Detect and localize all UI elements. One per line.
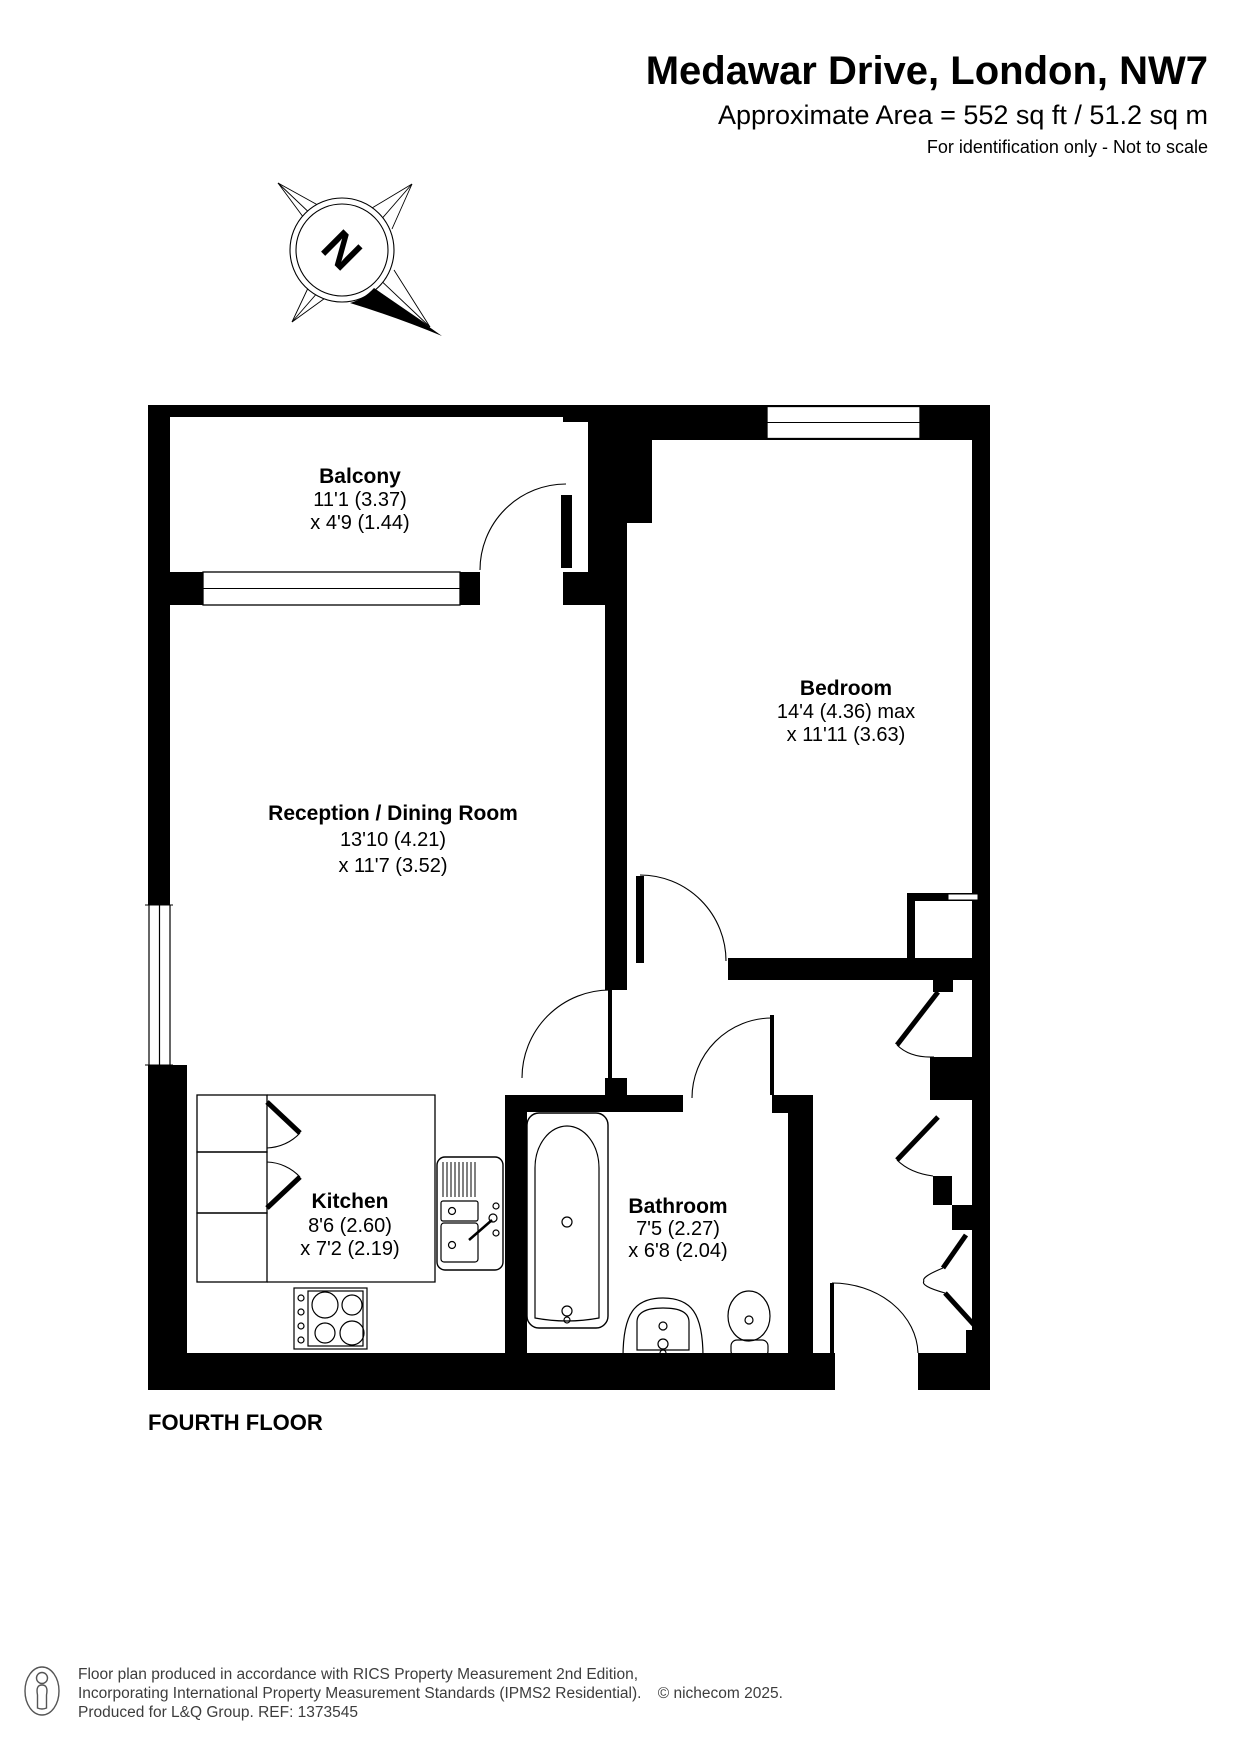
copyright-text: © nichecom 2025.	[658, 1685, 783, 1702]
closet-doors	[897, 992, 975, 1326]
footer-ipms-text: Incorporating International Property Mea…	[78, 1685, 641, 1702]
floor-plan: Medawar Drive, London, NW7 Approximate A…	[0, 0, 1241, 1755]
balcony-door-arc	[480, 484, 566, 570]
kitchen-label: Kitchen 8'6 (2.60) x 7'2 (2.19)	[300, 1190, 399, 1260]
header: Medawar Drive, London, NW7 Approximate A…	[646, 49, 1208, 157]
bathroom-dim2: x 6'8 (2.04)	[628, 1240, 727, 1262]
balcony-dim1: 11'1 (3.37)	[313, 489, 407, 511]
washbasin-icon	[623, 1298, 703, 1357]
bedroom-dim1: 14'4 (4.36) max	[777, 701, 915, 723]
balcony-dim2: x 4'9 (1.44)	[310, 512, 409, 534]
footer: Floor plan produced in accordance with R…	[25, 1666, 783, 1721]
bedroom-window	[767, 407, 920, 439]
kitchen-dim1: 8'6 (2.60)	[308, 1215, 392, 1237]
kitchen-cupboards	[197, 1095, 267, 1282]
person-icon	[25, 1667, 59, 1715]
reception-dim1: 13'10 (4.21)	[340, 829, 446, 851]
balcony-sliding-window	[203, 572, 460, 605]
reception-dim2: x 11'7 (3.52)	[338, 855, 447, 877]
hob-icon	[294, 1288, 367, 1349]
bathroom-name: Bathroom	[628, 1195, 727, 1218]
approximate-area: Approximate Area = 552 sq ft / 51.2 sq m	[718, 100, 1208, 130]
balcony-name: Balcony	[319, 465, 401, 488]
balcony-label: Balcony 11'1 (3.37) x 4'9 (1.44)	[310, 465, 409, 534]
bathroom-label: Bathroom 7'5 (2.27) x 6'8 (2.04)	[628, 1195, 727, 1262]
toilet-icon	[728, 1291, 770, 1357]
bathroom-dim1: 7'5 (2.27)	[636, 1218, 720, 1240]
reception-label: Reception / Dining Room 13'10 (4.21) x 1…	[268, 802, 518, 877]
reception-door-arc	[522, 990, 610, 1078]
reception-name: Reception / Dining Room	[268, 802, 518, 825]
entrance-door-arc	[832, 1283, 918, 1353]
floor-label: FOURTH FLOOR	[148, 1410, 323, 1435]
bedroom-door-arc	[640, 875, 726, 961]
bathtub-icon	[527, 1113, 608, 1328]
bedroom-name: Bedroom	[800, 677, 892, 700]
nook-window	[948, 894, 978, 900]
compass-rose: N	[278, 183, 442, 336]
floorplan-page: Medawar Drive, London, NW7 Approximate A…	[0, 0, 1241, 1755]
kitchen-dim2: x 7'2 (2.19)	[300, 1238, 399, 1260]
bedroom-dim2: x 11'11 (3.63)	[787, 724, 906, 746]
footer-line2: Incorporating International Property Mea…	[78, 1685, 783, 1702]
footer-line3: Produced for L&Q Group. REF: 1373545	[78, 1704, 358, 1721]
disclaimer-text: For identification only - Not to scale	[927, 137, 1208, 157]
footer-line1: Floor plan produced in accordance with R…	[78, 1666, 638, 1683]
reception-window	[145, 905, 173, 1065]
bathroom-door-arc	[692, 1018, 772, 1098]
sink-icon	[437, 1157, 503, 1270]
kitchen-name: Kitchen	[311, 1190, 388, 1213]
page-title: Medawar Drive, London, NW7	[646, 49, 1208, 93]
bedroom-label: Bedroom 14'4 (4.36) max x 11'11 (3.63)	[777, 677, 915, 746]
kitchen-cupboard-doors	[267, 1102, 300, 1208]
